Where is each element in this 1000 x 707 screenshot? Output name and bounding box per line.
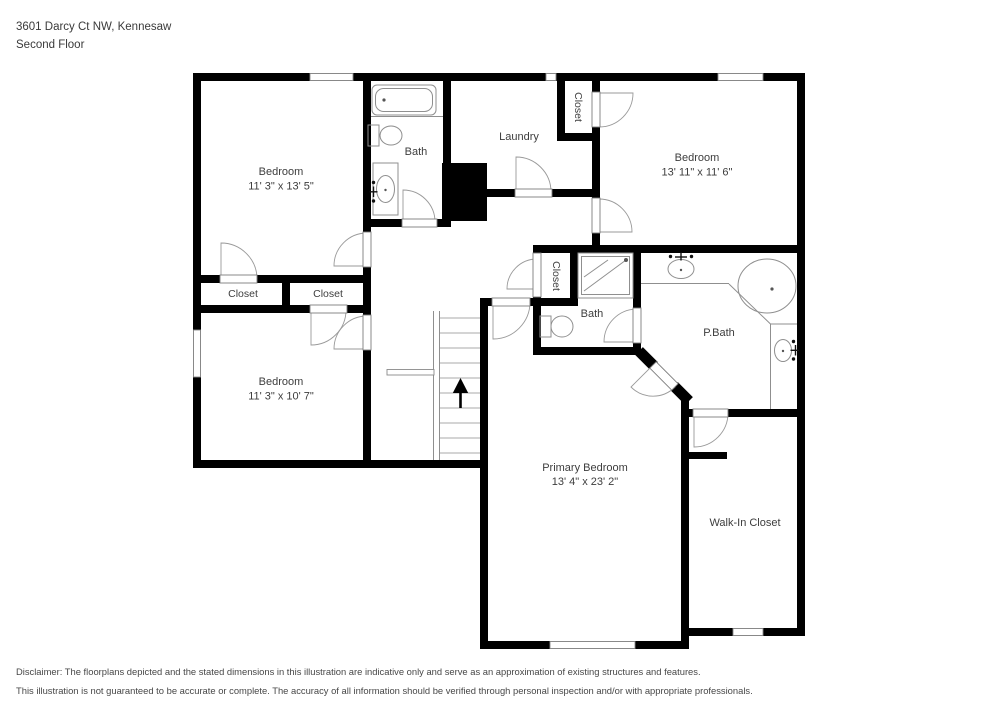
stair-hall-railing	[387, 370, 434, 376]
window-bedroom-bottom-left	[194, 330, 201, 377]
door-closet-bedroom-right	[592, 92, 633, 127]
plan-address: 3601 Darcy Ct NW, Kennesaw	[16, 21, 171, 33]
label-bedroom-top-left-dims: 11' 3" x 13' 5"	[248, 181, 314, 193]
door-closet-left-a	[220, 243, 257, 283]
disclaimer-line-2: This illustration is not guaranteed to b…	[16, 685, 753, 696]
label-closet-left-b: Closet	[313, 288, 343, 300]
label-closet-hall: Closet	[550, 261, 562, 291]
toilet-icon	[368, 125, 402, 146]
door-bedroom-right	[592, 198, 632, 233]
label-walk-in-closet: Walk-In Closet	[709, 517, 780, 529]
plan-floor-name: Second Floor	[16, 39, 84, 51]
label-primary-bath: P.Bath	[703, 327, 735, 339]
sink-icon	[771, 324, 800, 409]
bathtub-icon	[372, 85, 436, 115]
window-walk-in-closet	[733, 629, 763, 636]
shower-icon	[578, 253, 633, 298]
door-primary-bath-diagonal	[631, 362, 678, 396]
label-primary-bedroom: Primary Bedroom	[542, 462, 628, 474]
label-bedroom-top-left: Bedroom	[259, 166, 304, 178]
door-bedroom-top-left	[334, 232, 371, 267]
label-closet-left-a: Closet	[228, 288, 258, 300]
label-laundry: Laundry	[499, 131, 539, 143]
label-bedroom-bottom-left: Bedroom	[259, 376, 304, 388]
door-primary-bedroom	[492, 298, 530, 339]
door-bath-top	[402, 190, 437, 227]
label-bedroom-right-dims: 13' 11" x 11' 6"	[662, 167, 733, 179]
floor-plan-canvas: Bedroom 11' 3" x 13' 5" Bath Laundry Clo…	[0, 0, 1000, 707]
label-closet-bedroom-right: Closet	[572, 92, 584, 122]
label-bedroom-bottom-left-dims: 11' 3" x 10' 7"	[248, 391, 314, 403]
floor-plan-page: 3601 Darcy Ct NW, Kennesaw Second Floor	[0, 0, 1000, 707]
door-bath-hall	[604, 308, 641, 343]
sink-icon	[370, 163, 399, 215]
disclaimer-line-1: Disclaimer: The floorplans depicted and …	[16, 666, 701, 677]
door-laundry	[515, 157, 552, 197]
stairs-up-arrow-icon	[453, 378, 468, 408]
label-bath-top: Bath	[405, 146, 428, 158]
label-primary-bedroom-dims: 13' 4" x 23' 2"	[552, 476, 619, 488]
chase-solid-block	[442, 163, 487, 221]
door-walk-in-closet	[693, 409, 728, 447]
window-laundry-small	[546, 74, 556, 81]
label-bath-hall: Bath	[581, 308, 604, 320]
window-bedroom-top-left	[310, 74, 353, 81]
window-bedroom-right	[718, 74, 763, 81]
door-closet-hall	[507, 253, 541, 297]
window-primary-bedroom	[550, 642, 635, 649]
label-bedroom-right: Bedroom	[675, 152, 720, 164]
toilet-icon	[540, 316, 573, 337]
garden-tub-icon	[729, 259, 796, 324]
staircase	[387, 311, 480, 460]
sink-icon	[668, 253, 694, 279]
